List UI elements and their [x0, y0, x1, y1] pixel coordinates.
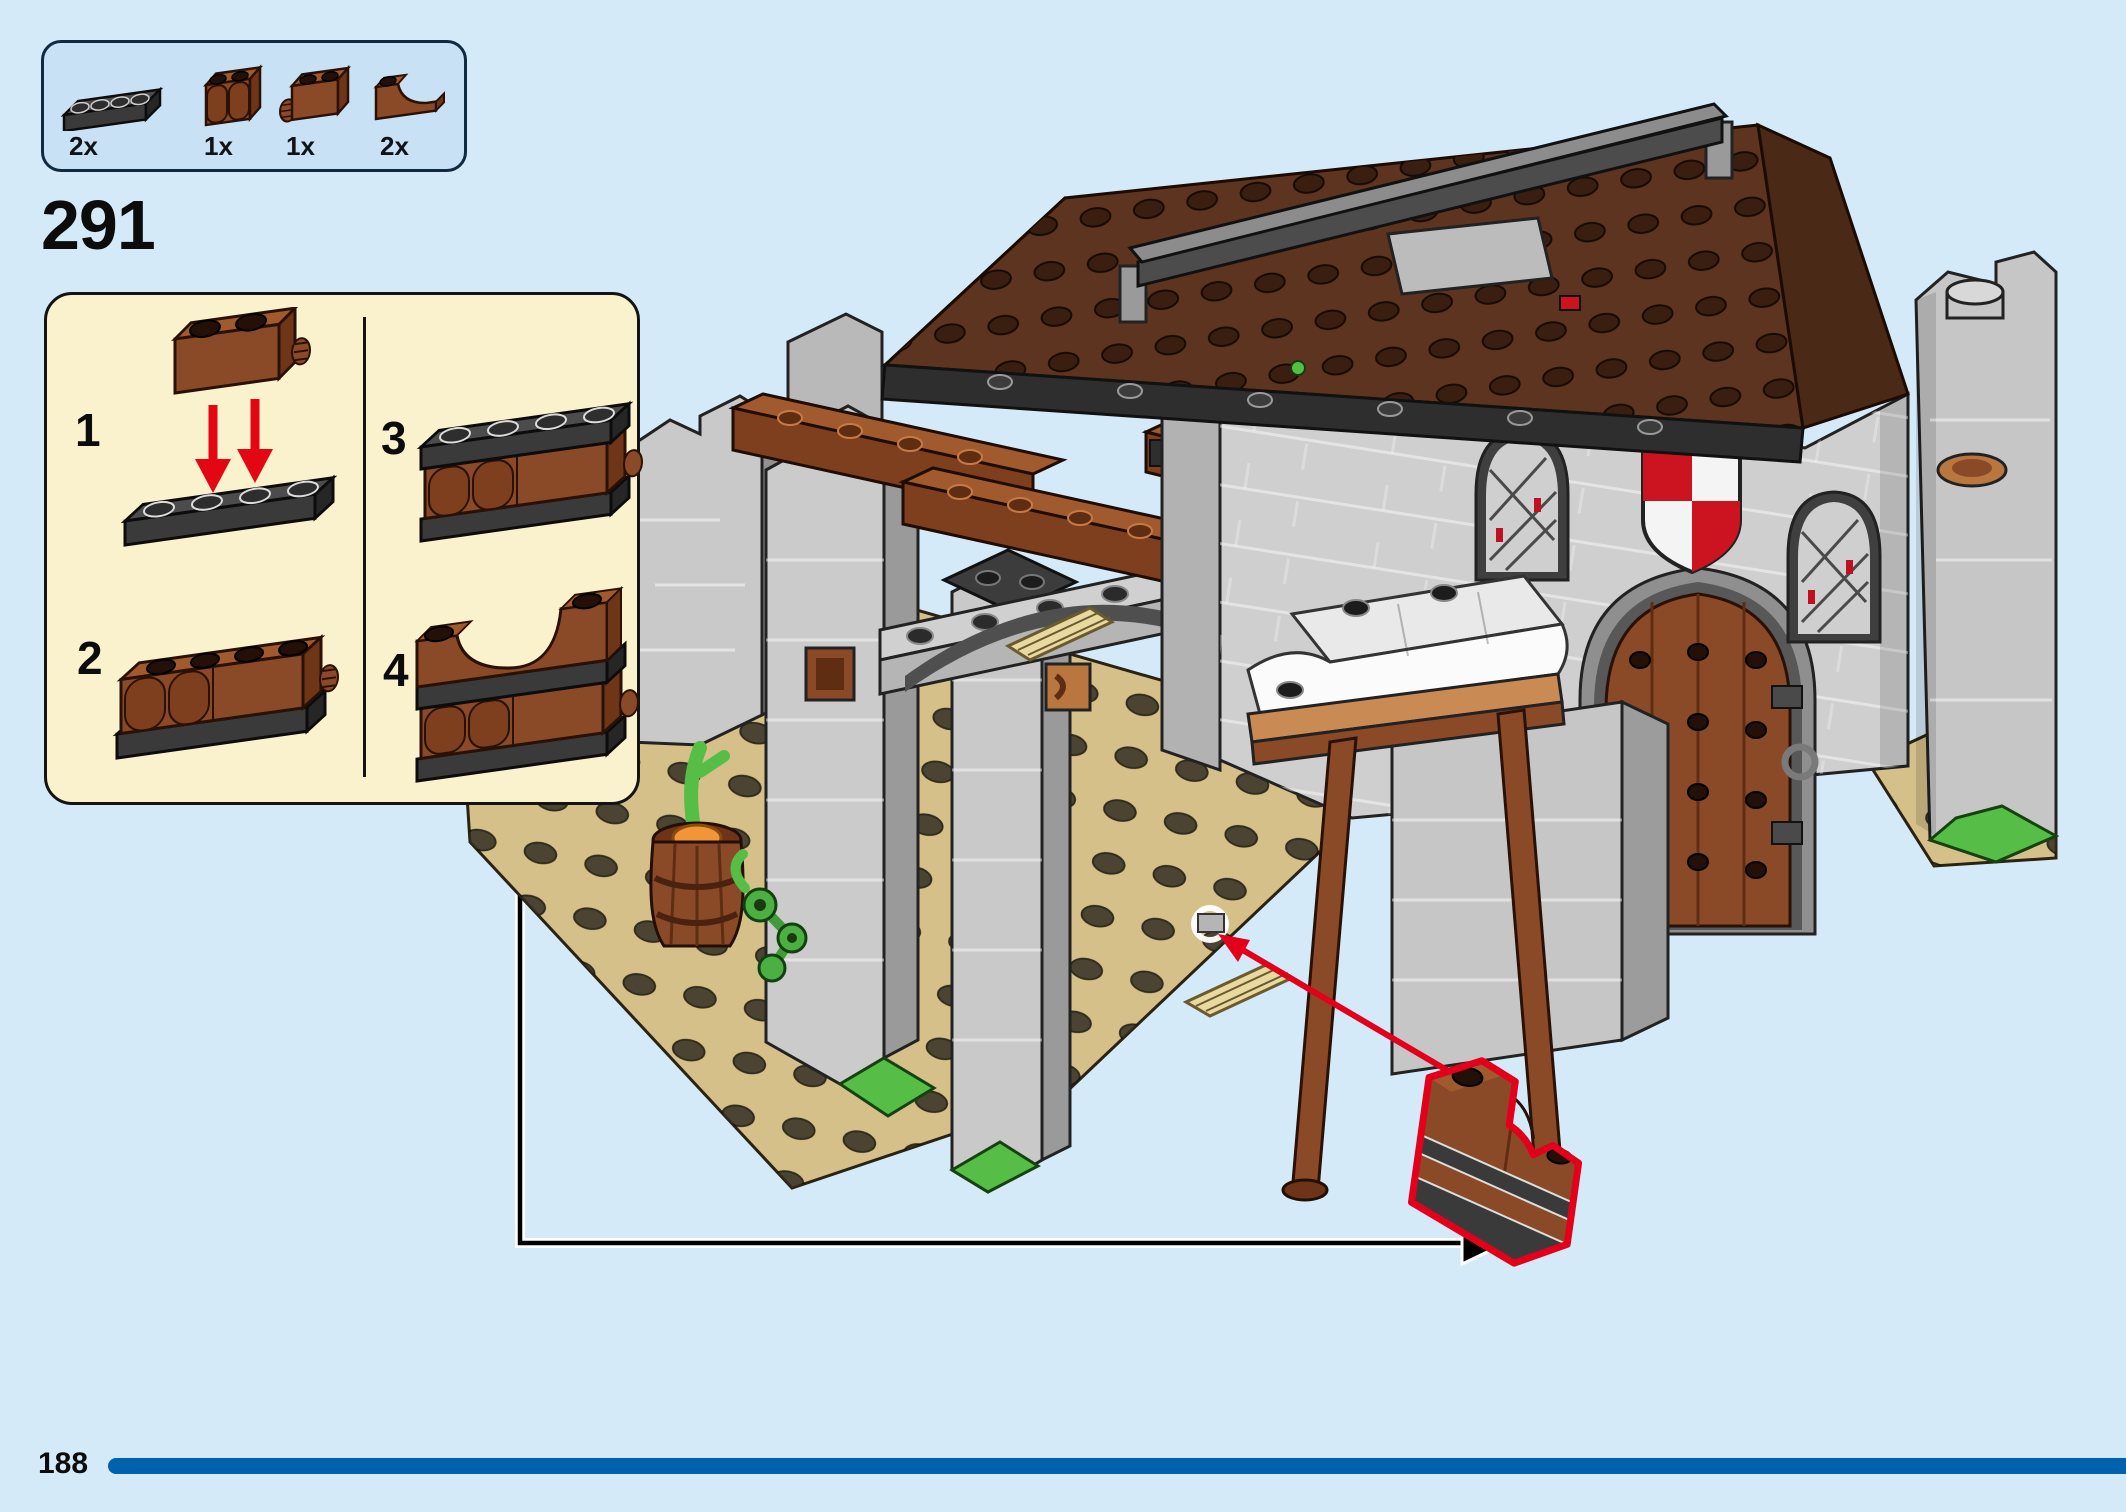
substep-number: 2 [77, 635, 103, 681]
substep-number: 4 [383, 647, 409, 693]
arch-brick-icon [360, 53, 460, 133]
page-number: 188 [38, 1447, 88, 1481]
substep-4-diagram [407, 563, 647, 798]
lattice-window-right [1788, 492, 1880, 642]
substep-3-diagram [413, 357, 643, 557]
substeps-divider [363, 317, 366, 777]
highlighted-part [1405, 1054, 1591, 1270]
parts-panel: 2x 1x 1x 2x [41, 40, 467, 172]
part-qty: 2x [69, 131, 98, 162]
rock-tower [1916, 252, 2056, 862]
part-qty: 2x [380, 131, 409, 162]
part-qty: 1x [204, 131, 233, 162]
substep-1-diagram [113, 307, 353, 577]
part-qty: 1x [286, 131, 315, 162]
substep-number: 3 [381, 415, 407, 461]
substeps-box: 1 2 3 4 [44, 292, 640, 805]
substep-number: 1 [75, 407, 101, 453]
step-number: 291 [41, 190, 155, 260]
hinge-brick-icon [268, 53, 368, 133]
progress-bar [108, 1458, 2126, 1474]
plate-1x4-dark-icon [56, 61, 176, 131]
lattice-window-left [1476, 430, 1568, 580]
substep-2-diagram [105, 590, 355, 790]
wood-stud-roof [882, 125, 1908, 462]
